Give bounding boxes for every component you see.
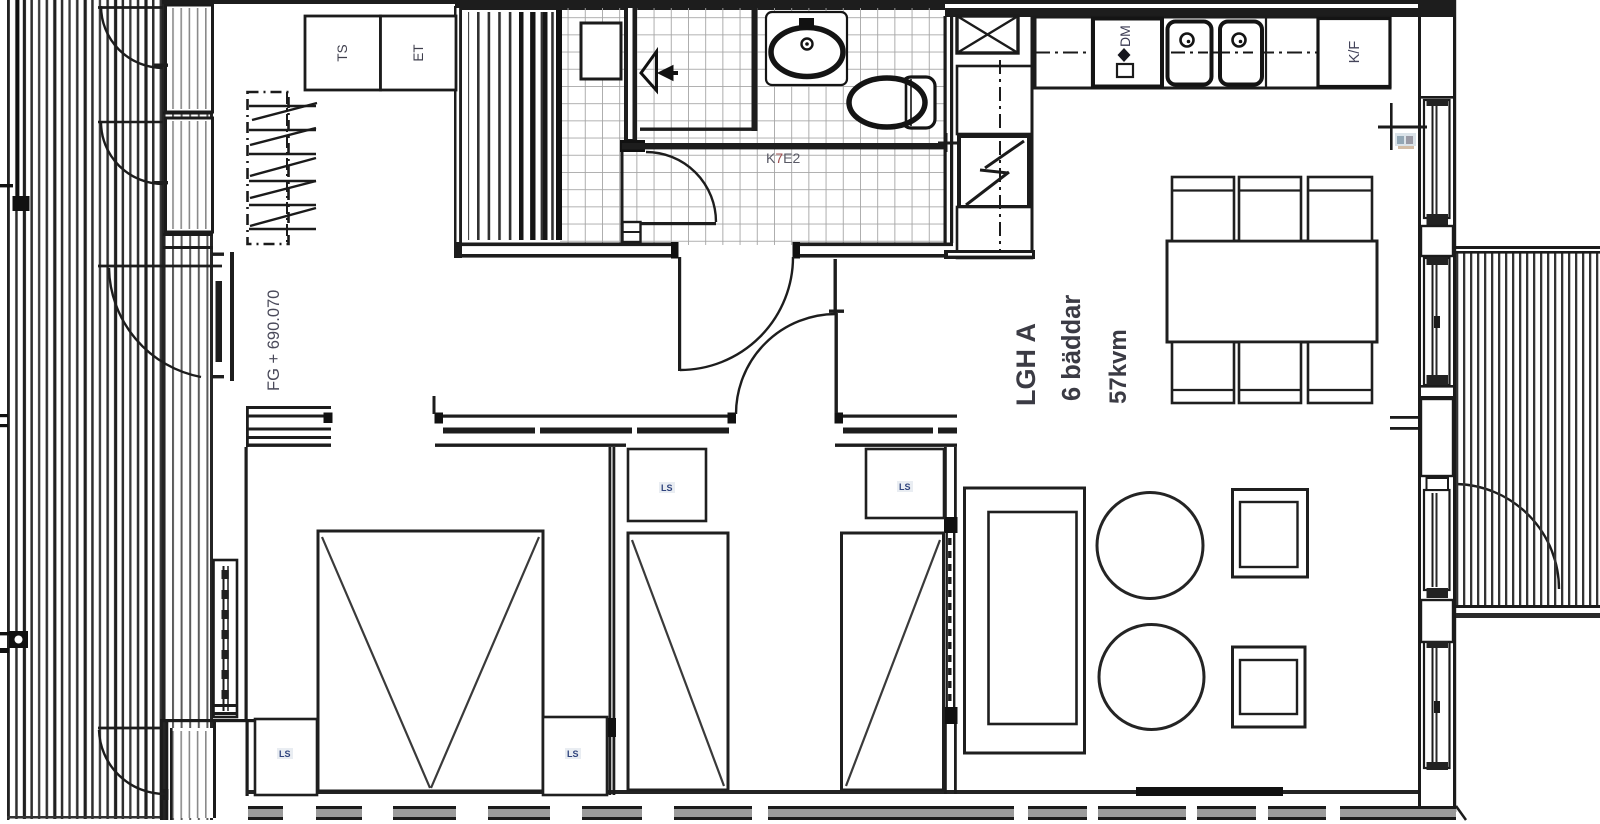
svg-text:LS: LS [899,482,911,492]
svg-text:LS: LS [661,483,673,493]
svg-text:57kvm: 57kvm [1105,329,1132,404]
svg-text:DM: DM [1117,25,1133,47]
svg-text:TS: TS [335,44,350,61]
svg-text:6 bäddar: 6 bäddar [1058,295,1086,401]
svg-text:ET: ET [411,44,426,61]
svg-text:FG + 690.070: FG + 690.070 [265,290,283,391]
svg-text:LS: LS [279,749,291,759]
svg-text:K/F: K/F [1347,41,1363,64]
svg-text:K7E2: K7E2 [766,150,800,166]
svg-text:LGH A: LGH A [1011,323,1041,406]
svg-text:LS: LS [567,749,579,759]
